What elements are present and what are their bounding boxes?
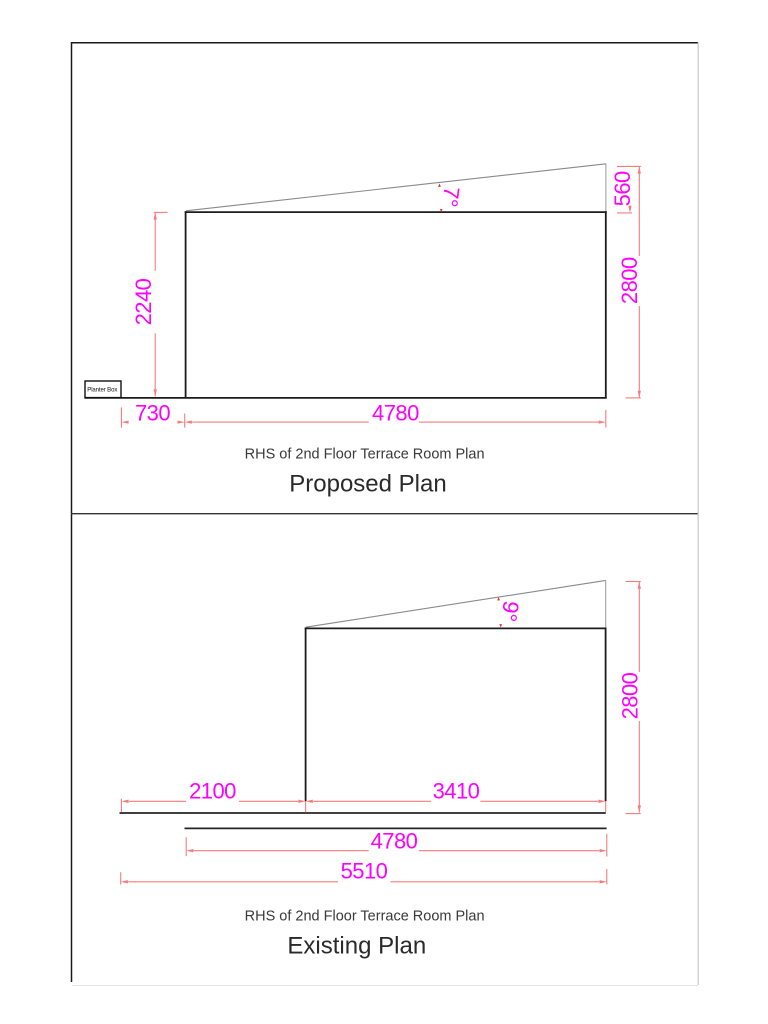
svg-text:4780: 4780 — [372, 400, 419, 425]
svg-text:RHS of 2nd Floor Terrace Room: RHS of 2nd Floor Terrace Room Plan — [245, 447, 485, 463]
svg-text:Existing Plan: Existing Plan — [287, 933, 426, 960]
svg-text:3410: 3410 — [433, 779, 480, 804]
svg-text:5510: 5510 — [341, 859, 388, 884]
svg-text:2800: 2800 — [617, 257, 642, 304]
svg-text:7°: 7° — [437, 185, 464, 208]
svg-text:730: 730 — [135, 400, 170, 425]
svg-text:Planter Box: Planter Box — [87, 388, 117, 394]
svg-text:2800: 2800 — [617, 672, 642, 719]
svg-text:2240: 2240 — [131, 278, 156, 325]
svg-text:RHS of 2nd Floor Terrace Room: RHS of 2nd Floor Terrace Room Plan — [245, 909, 485, 925]
svg-text:2100: 2100 — [189, 779, 236, 804]
svg-text:Proposed Plan: Proposed Plan — [289, 471, 446, 498]
svg-text:4780: 4780 — [371, 829, 418, 854]
svg-text:9°: 9° — [496, 599, 524, 623]
svg-text:560: 560 — [610, 171, 635, 206]
